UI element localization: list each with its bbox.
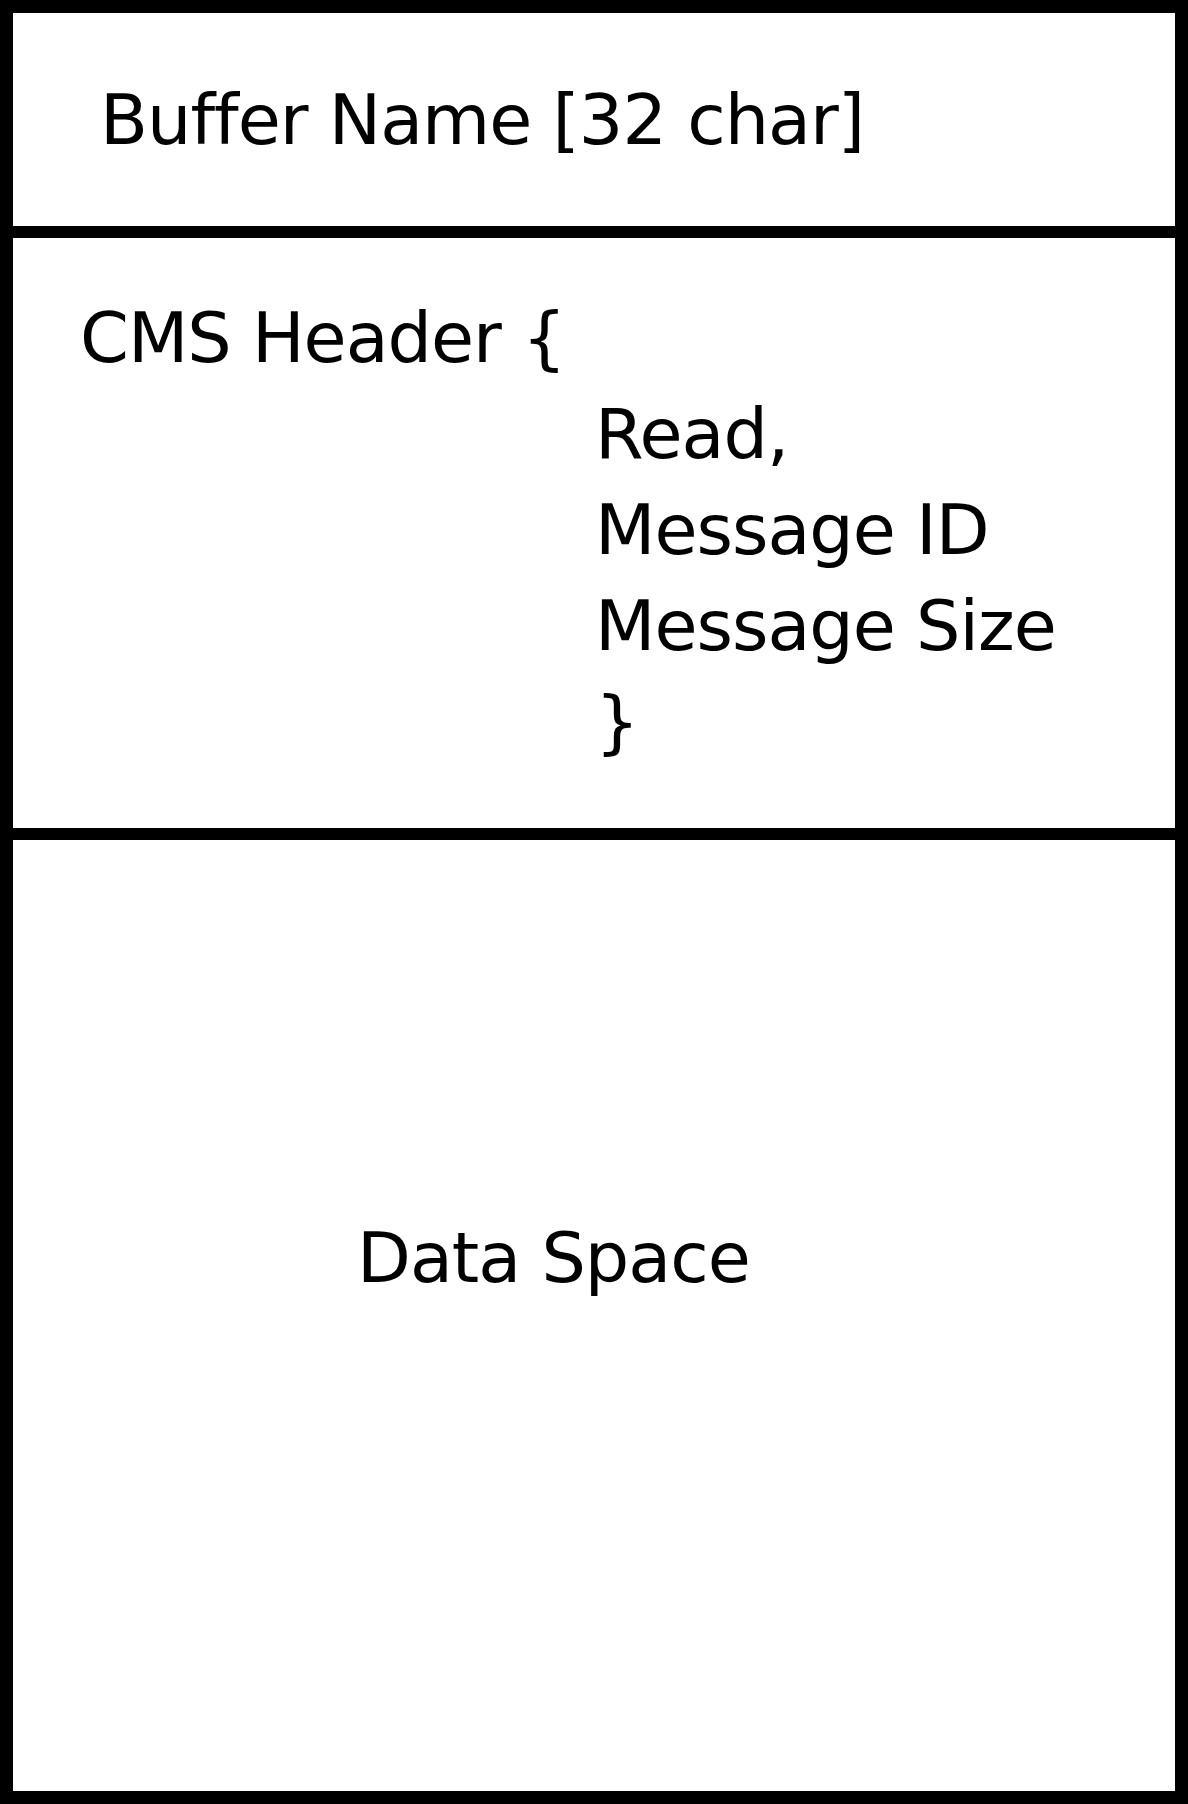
- buffer-box: Buffer Name [32 char] CMS Header { Read,…: [0, 0, 1188, 1804]
- cms-header-open-label: CMS Header {: [80, 290, 1175, 386]
- cms-header-field-message-size: Message Size: [595, 578, 1175, 674]
- data-space-section: Data Space: [13, 840, 1175, 1791]
- cms-header-field-message-id: Message ID: [595, 482, 1175, 578]
- data-space-label: Data Space: [357, 1210, 1175, 1306]
- divider-name-header: [13, 226, 1175, 238]
- buffer-name-section: Buffer Name [32 char]: [13, 13, 1175, 226]
- cms-header-field-read: Read,: [595, 386, 1175, 482]
- cms-header-close-label: }: [595, 674, 1175, 770]
- cms-header-section: CMS Header { Read, Message ID Message Si…: [13, 238, 1175, 828]
- buffer-name-label: Buffer Name [32 char]: [100, 85, 864, 155]
- buffer-layout-diagram: Buffer Name [32 char] CMS Header { Read,…: [0, 0, 1188, 1804]
- divider-header-data: [13, 828, 1175, 840]
